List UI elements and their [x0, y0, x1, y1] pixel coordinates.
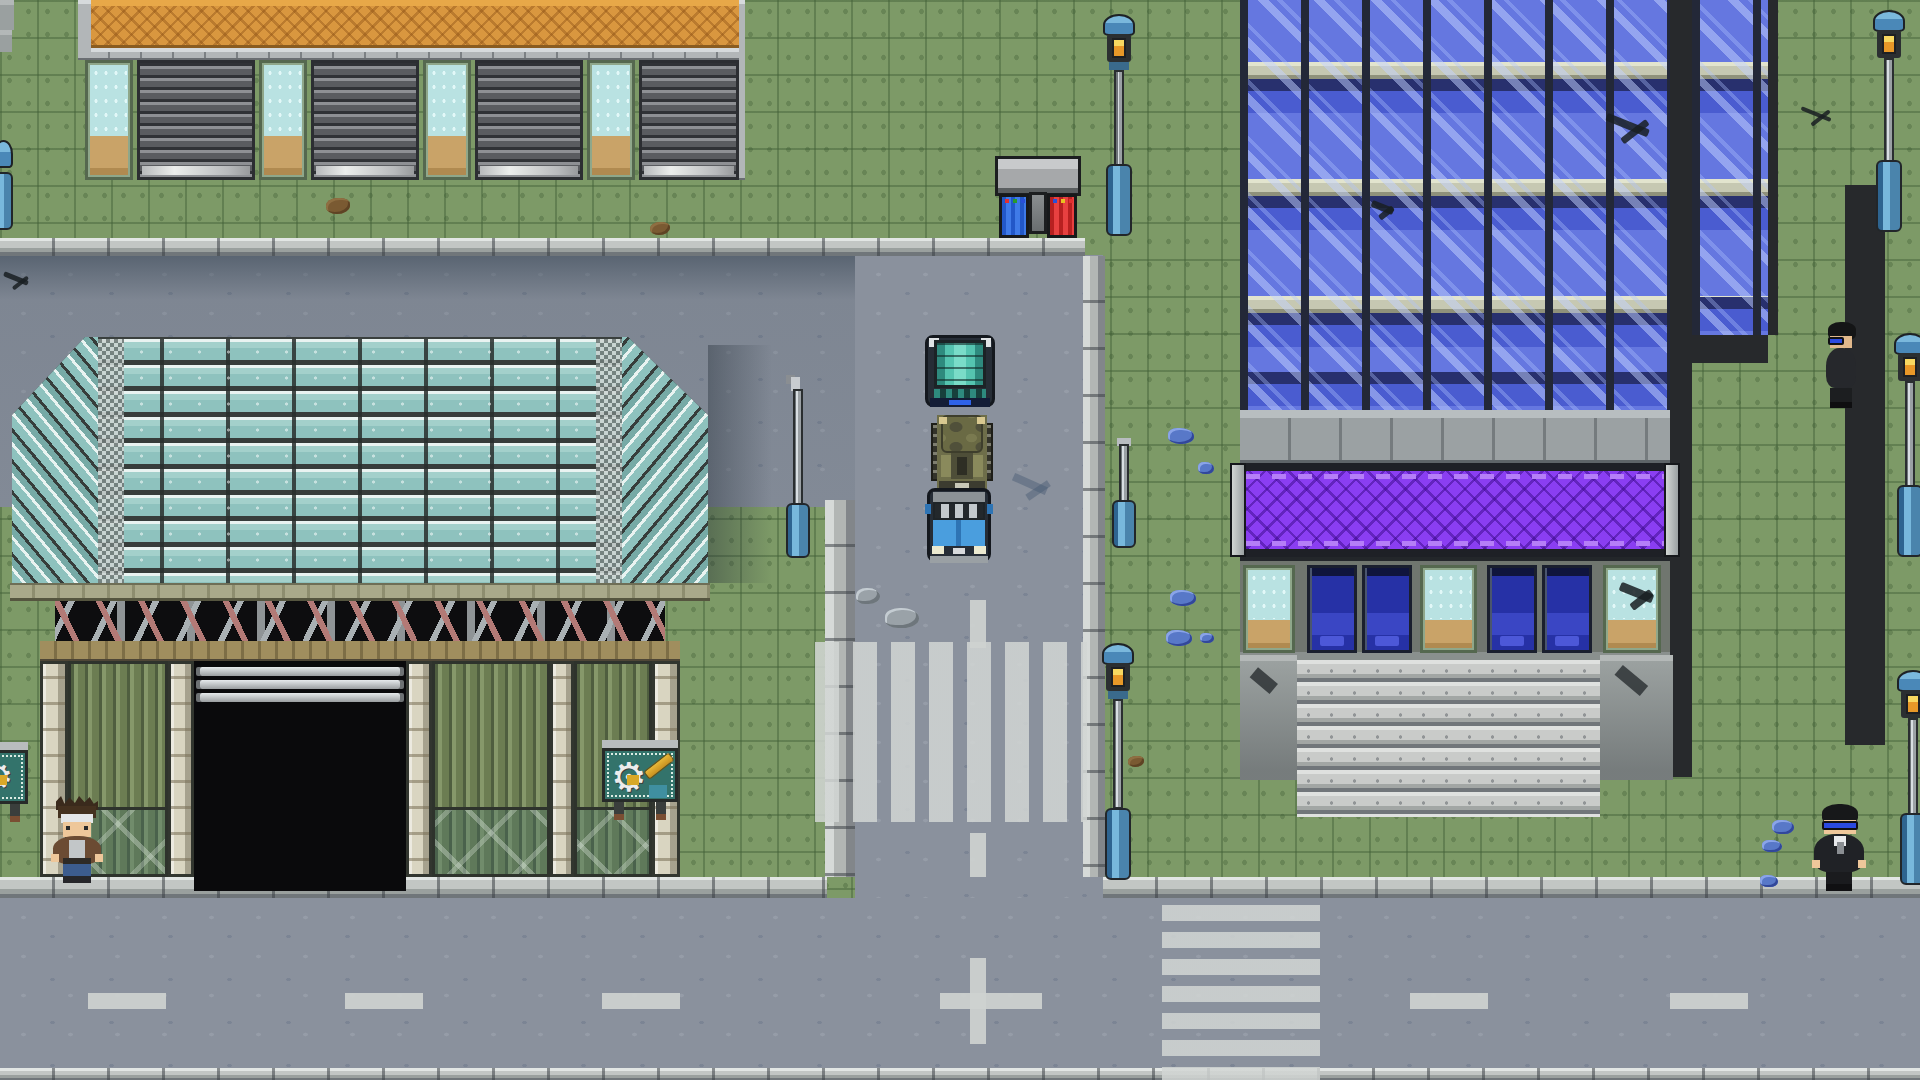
depot-corner-right — [739, 0, 745, 180]
tower-side-seam — [1670, 0, 1692, 777]
tower-wing-shadow — [1692, 335, 1768, 363]
tower-stairs[interactable] — [1297, 660, 1600, 817]
shutter-rail — [200, 667, 400, 676]
depot-shutter[interactable] — [639, 60, 739, 180]
blue-debris — [1198, 462, 1214, 474]
blue-debris — [1772, 820, 1794, 834]
street-lamp[interactable] — [1870, 10, 1908, 232]
lamp-light — [1112, 38, 1126, 58]
lamp-housing — [1898, 353, 1920, 381]
tower-ledge — [1240, 410, 1670, 463]
guard-shades — [1828, 337, 1844, 345]
mechanic-eyes — [66, 826, 88, 830]
npc-alley-guard[interactable] — [1824, 322, 1858, 408]
blue-debris — [1170, 590, 1196, 606]
alley-strip — [1845, 185, 1885, 745]
tower-door[interactable] — [1307, 565, 1357, 653]
depot-shutter[interactable] — [475, 60, 583, 180]
hangar-panel — [432, 661, 550, 877]
vehicle-apc[interactable] — [925, 331, 995, 409]
sign-leg — [614, 802, 624, 814]
apc-blue-light — [949, 400, 971, 405]
broken-pole — [784, 375, 812, 558]
truck-fender — [941, 455, 951, 477]
lane-dash — [1410, 993, 1488, 1009]
broken-pole — [1109, 438, 1139, 548]
guard-shoes — [1830, 402, 1852, 408]
vending-canopy — [995, 156, 1081, 196]
gear-sign[interactable]: ⚙ — [0, 742, 32, 818]
tower-awning — [1230, 463, 1680, 557]
car-plate — [953, 548, 965, 554]
lane-dash — [88, 993, 166, 1009]
sign-leg — [10, 804, 20, 816]
hangar-roof-hip-right — [622, 337, 708, 583]
lane-dash-vertical — [970, 833, 986, 877]
tower-glass-facade — [1240, 0, 1670, 410]
mechanic-hand — [51, 854, 59, 862]
lamp-pole — [1114, 70, 1124, 166]
crosswalk-southeast — [1162, 905, 1320, 1080]
toolbox-icon — [649, 785, 667, 798]
tower-window — [1243, 565, 1295, 653]
car-roof-bar — [933, 492, 985, 502]
depot-shutter[interactable] — [137, 60, 255, 180]
pole-base — [786, 503, 810, 558]
truck-fender — [973, 455, 983, 477]
rock — [885, 608, 919, 628]
lamp-housing — [1877, 30, 1901, 58]
tower-door-wall — [1240, 557, 1670, 660]
hangar-pillar — [550, 661, 574, 877]
curb-bottom-edge — [0, 1068, 1920, 1080]
truck-light — [939, 417, 947, 424]
curb-bottom-east — [1103, 877, 1920, 898]
street-lamp[interactable] — [1894, 670, 1920, 885]
car-hood-crease — [956, 520, 961, 546]
tower-window — [1420, 565, 1477, 653]
tower-door[interactable] — [1542, 565, 1592, 653]
edge-lamp-dome-fragment — [0, 140, 13, 168]
lamp-dome — [1103, 14, 1135, 36]
hangar-roof-hip-left — [12, 337, 98, 583]
mechanic-hand — [95, 854, 103, 862]
car-windshield — [933, 502, 985, 520]
lane-dash — [602, 993, 680, 1009]
tower-door[interactable] — [1362, 565, 1412, 653]
awning-cap-left — [1230, 463, 1246, 557]
lamp-collar — [1108, 691, 1128, 699]
depot-building — [78, 0, 745, 180]
lamp-light — [1903, 357, 1917, 377]
edge-building-fragment — [0, 30, 12, 52]
hangar-roof-ridge-left — [98, 339, 124, 583]
car-headlight — [974, 546, 986, 554]
truck-grill — [957, 457, 967, 475]
curb-top — [0, 238, 1085, 256]
blue-debris — [1762, 840, 1782, 852]
vending-machine-blue[interactable] — [999, 194, 1029, 238]
depot-window — [259, 60, 307, 180]
lamp-light — [1906, 694, 1920, 714]
game-viewport: ⚙⚙ — [0, 0, 1920, 1080]
rock — [856, 588, 880, 604]
sign-board: ⚙ — [602, 748, 678, 802]
gear-sign[interactable]: ⚙ — [598, 740, 682, 818]
edge-building-fragment — [0, 0, 14, 30]
street-lamp[interactable] — [1099, 643, 1137, 880]
hangar-shadow — [708, 345, 772, 583]
car-mirror — [925, 504, 931, 514]
tower-wing-facade — [1692, 0, 1768, 335]
hangar-trim — [40, 641, 680, 661]
depot-shutter[interactable] — [311, 60, 419, 180]
lane-dash-t-marker-h — [940, 993, 1042, 1009]
lamp-light — [1882, 34, 1896, 54]
lamp-dome — [1894, 333, 1920, 355]
tower-crack — [1615, 572, 1663, 628]
pole-base — [1112, 500, 1136, 548]
vehicle-car[interactable] — [925, 486, 993, 564]
blue-debris — [1168, 428, 1194, 444]
hangar-truss-band — [55, 601, 665, 641]
dirt-patch — [650, 222, 670, 235]
tower-door[interactable] — [1487, 565, 1537, 653]
lamp-light — [1111, 667, 1125, 687]
lamp-base — [1105, 808, 1131, 880]
hangar-roof-ridge-right — [596, 339, 622, 583]
blue-debris — [1760, 875, 1778, 887]
mechanic-shoes — [63, 876, 91, 883]
apc-grill — [934, 389, 986, 398]
dirt-patch — [326, 198, 350, 214]
crack-mark — [1796, 104, 1840, 132]
lamp-housing — [1106, 663, 1130, 691]
suit-tie — [1837, 842, 1844, 854]
lamp-collar — [1109, 62, 1129, 70]
hangar-pillar — [406, 661, 432, 877]
depot-eave — [78, 48, 745, 60]
lamp-pole — [1908, 718, 1918, 816]
car-mirror — [987, 504, 993, 514]
npc-mechanic[interactable] — [50, 796, 104, 884]
lamp-base — [1900, 813, 1920, 885]
shutter-rail — [200, 680, 400, 689]
tower-base-wall-right — [1600, 655, 1673, 780]
lamp-pole — [1884, 58, 1894, 162]
lamp-dome — [1873, 10, 1905, 32]
pole-shaft — [1119, 444, 1129, 502]
hangar-pillar — [168, 661, 194, 877]
awning-canvas — [1246, 471, 1664, 549]
lamp-pole — [1113, 699, 1123, 809]
truck-light — [977, 417, 985, 424]
road-crack — [1008, 466, 1060, 514]
lamp-dome — [1102, 643, 1134, 665]
vending-machines — [993, 156, 1085, 238]
guard-legs — [1830, 388, 1852, 402]
lane-dash-t-marker-v — [970, 958, 986, 1044]
guard-body — [1826, 348, 1856, 388]
tower-crack — [1368, 192, 1400, 236]
lamp-housing — [1901, 690, 1920, 718]
mechanic-jeans — [63, 864, 91, 876]
lane-dash — [345, 993, 423, 1009]
sign-leg — [656, 802, 666, 814]
lamp-base — [1897, 485, 1920, 557]
mechanic-shirt — [69, 840, 85, 858]
hangar-eave — [10, 583, 710, 601]
depot-roof — [78, 0, 745, 48]
awning-cap-right — [1664, 463, 1680, 557]
tower-base-wall-left — [1240, 655, 1297, 780]
suit-legs — [1826, 872, 1852, 884]
street-lamp[interactable] — [1101, 14, 1137, 236]
depot-window — [587, 60, 635, 180]
depot-window — [423, 60, 471, 180]
hangar-roof-glass — [98, 339, 622, 583]
blue-debris — [1200, 633, 1214, 643]
vending-machine-red[interactable] — [1047, 194, 1077, 238]
suit-shades — [1822, 821, 1858, 830]
road-bottom — [0, 898, 1920, 1080]
lamp-housing — [1107, 34, 1131, 62]
hangar-roof — [10, 337, 710, 583]
lamp-base — [1876, 160, 1902, 232]
tower-wing-edge — [1768, 0, 1778, 335]
apc-canopy — [934, 340, 986, 388]
car-bumper — [930, 556, 988, 563]
gear-hub — [0, 775, 7, 785]
lamp-pole — [1905, 381, 1915, 487]
tower-crack — [1600, 106, 1662, 158]
lane-dash-vertical — [970, 600, 986, 648]
depot-window — [85, 60, 133, 180]
suit-hand — [1812, 860, 1820, 868]
suit-hand — [1858, 860, 1866, 868]
vehicle-army-truck[interactable] — [931, 411, 993, 491]
depot-corner-left — [78, 0, 91, 60]
street-lamp[interactable] — [1891, 333, 1920, 557]
gear-hub — [627, 775, 639, 785]
hangar-entrance[interactable] — [194, 661, 406, 891]
crosswalk-middle — [815, 642, 1087, 822]
blue-debris — [1166, 630, 1192, 646]
suit-shoes — [1826, 884, 1852, 891]
crack-mark — [0, 268, 36, 298]
pole-shaft — [793, 389, 803, 505]
shutter-rail — [200, 693, 400, 702]
sign-board: ⚙ — [0, 750, 28, 804]
edge-lamp-base-fragment — [0, 172, 13, 230]
lane-dash — [1670, 993, 1748, 1009]
office-tower — [1240, 0, 1778, 817]
vending-divider — [1029, 192, 1047, 234]
lamp-base — [1106, 164, 1132, 236]
npc-suit-man[interactable] — [1810, 804, 1868, 892]
lamp-dome — [1897, 670, 1920, 692]
car-headlight — [932, 546, 944, 554]
